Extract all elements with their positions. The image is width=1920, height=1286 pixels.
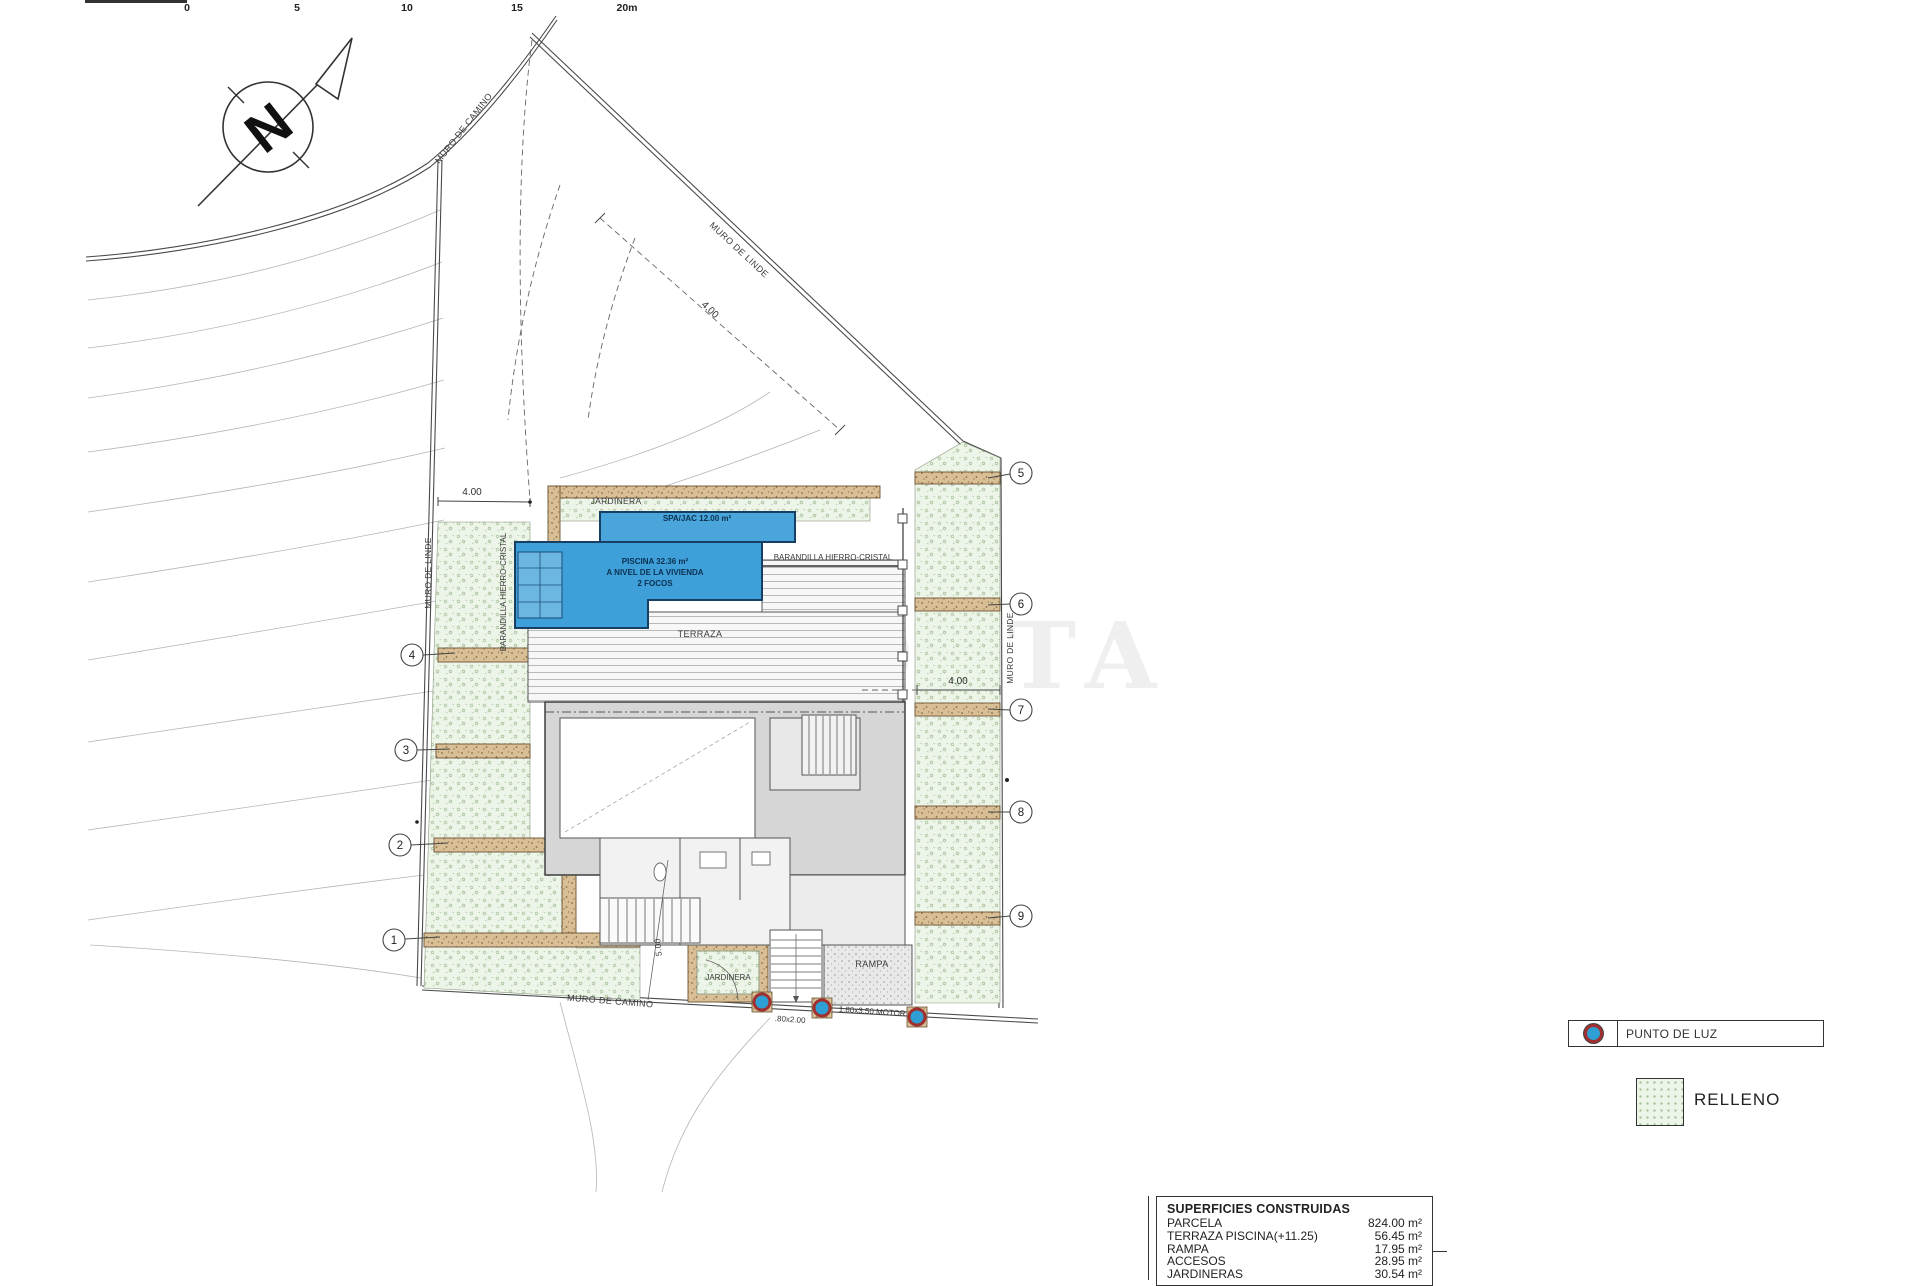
pool-steps	[518, 552, 562, 618]
svg-text:3: 3	[403, 745, 409, 757]
label-jardinera-top: JARDINERA	[591, 496, 642, 506]
label-barandilla-v: BARANDILLA HIERRO-CRISTAL	[499, 532, 508, 651]
label-motor: 1.80x3.50 MOTOR	[838, 1005, 906, 1019]
dim-500-bottom: 5.00	[652, 938, 664, 957]
svg-text:8: 8	[1018, 807, 1024, 819]
svg-text:5: 5	[1018, 468, 1024, 480]
svg-text:2: 2	[397, 840, 403, 852]
basin-fixture	[700, 852, 726, 868]
piscina-label-3: 2 FOCOS	[637, 579, 673, 588]
stair-access	[770, 930, 822, 1003]
label-muro-camino-bottom: MURO DE CAMINO	[567, 993, 654, 1010]
wc-fixture	[654, 863, 666, 881]
stair-interior	[802, 715, 856, 775]
svg-text:7: 7	[1018, 705, 1024, 717]
label-rampa: RAMPA	[855, 959, 888, 969]
north-letter: N	[233, 90, 304, 165]
fixture-small	[752, 852, 770, 865]
site-plan-svg: COSTA 0 5 10 15 20m N	[0, 0, 1920, 1280]
punto-de-luz-icon	[1584, 1024, 1603, 1043]
row-value: 30.54 m²	[1375, 1268, 1422, 1281]
dim-400-left: 4.00	[462, 487, 482, 498]
piscina-label-2: A NIVEL DE LA VIVIENDA	[606, 568, 703, 577]
scale-tick-10: 10	[401, 2, 413, 14]
svg-text:1: 1	[391, 935, 397, 947]
stair-garden	[600, 898, 700, 943]
table-row: JARDINERAS30.54 m²	[1167, 1268, 1422, 1281]
terraza-deck-upper	[762, 560, 905, 612]
legend-icon-cell	[1569, 1021, 1618, 1046]
label-muro-linde-right: MURO DE LINDE	[1005, 612, 1015, 683]
rampa-area	[824, 945, 912, 1005]
scale-bar-segment	[85, 0, 187, 3]
legend-relleno-label: RELLENO	[1694, 1090, 1780, 1110]
dim-400-right: 4.00	[948, 676, 968, 687]
svg-text:6: 6	[1018, 599, 1024, 611]
scale-tick-5: 5	[294, 2, 300, 14]
row-label: TERRAZA PISCINA(+11.25)	[1167, 1230, 1318, 1243]
table-frame-line	[1148, 1196, 1149, 1280]
table-row: TERRAZA PISCINA(+11.25)56.45 m²	[1167, 1230, 1422, 1243]
punto-de-luz-icon	[812, 998, 832, 1018]
punto-de-luz-icon	[907, 1007, 927, 1027]
label-gate: .80x2.00	[775, 1014, 807, 1025]
areas-table-title: SUPERFICIES CONSTRUIDAS	[1167, 1202, 1422, 1216]
scale-tick-20m: 20m	[616, 2, 637, 14]
table-row: PARCELA824.00 m²	[1167, 1217, 1422, 1230]
north-arrow-icon: N	[198, 38, 352, 206]
row-value: 824.00 m²	[1368, 1217, 1422, 1230]
scale-tick-15: 15	[511, 2, 523, 14]
scale-tick-0: 0	[184, 2, 190, 14]
piscina-label-1: PISCINA 32.36 m²	[622, 557, 689, 566]
label-muro-camino-top: MURO DE CAMINO	[433, 91, 494, 165]
label-terraza: TERRAZA	[678, 629, 723, 639]
spa-label: SPA/JAC 12.00 m²	[663, 514, 732, 523]
relleno-swatch-icon	[1636, 1078, 1684, 1126]
areas-table: SUPERFICIES CONSTRUIDAS PARCELA824.00 m²…	[1156, 1196, 1433, 1286]
svg-text:4: 4	[409, 650, 416, 662]
row-label: PARCELA	[1167, 1217, 1222, 1230]
scale-bar: 0 5 10 15 20m	[85, 0, 638, 14]
table-tick	[1433, 1251, 1447, 1252]
label-barandilla-h: BARANDILLA HIERRO-CRISTAL	[774, 553, 893, 562]
legend-punto-de-luz-label: PUNTO DE LUZ	[1618, 1027, 1717, 1041]
row-label: JARDINERAS	[1167, 1268, 1243, 1281]
svg-text:9: 9	[1018, 911, 1024, 923]
label-jardinera-bottom: JARDINERA	[705, 973, 751, 982]
room-main	[560, 718, 755, 838]
dashed-contours	[508, 40, 635, 500]
label-muro-linde-left: MURO DE LINDE	[423, 537, 433, 608]
punto-de-luz-icon	[752, 992, 772, 1012]
legend-punto-de-luz: PUNTO DE LUZ	[1568, 1020, 1824, 1047]
row-value: 56.45 m²	[1375, 1230, 1422, 1243]
dim-400-diag: 4.00	[699, 300, 721, 322]
